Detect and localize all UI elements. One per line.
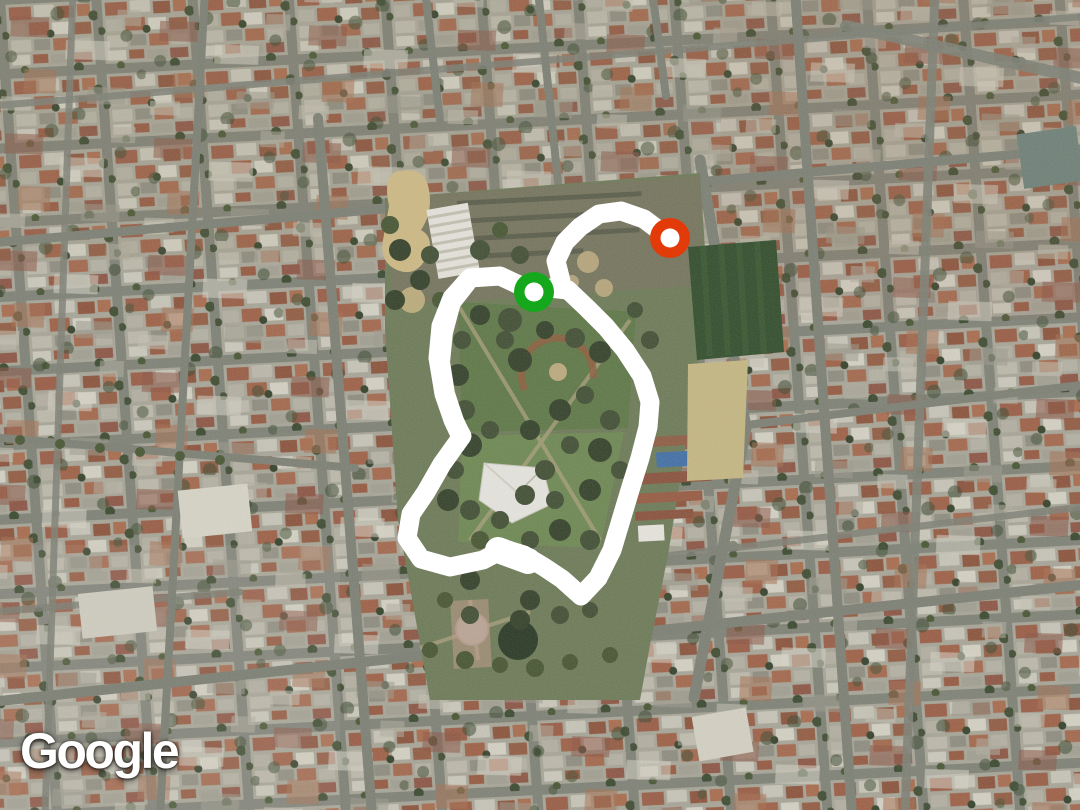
satellite-imagery — [0, 0, 1080, 810]
route-end-marker[interactable] — [650, 218, 690, 258]
start-marker-center — [525, 283, 544, 302]
route-start-marker[interactable] — [514, 272, 554, 312]
end-marker-center — [661, 229, 680, 248]
satellite-map[interactable]: Google — [0, 0, 1080, 810]
google-watermark[interactable]: Google — [20, 722, 177, 780]
